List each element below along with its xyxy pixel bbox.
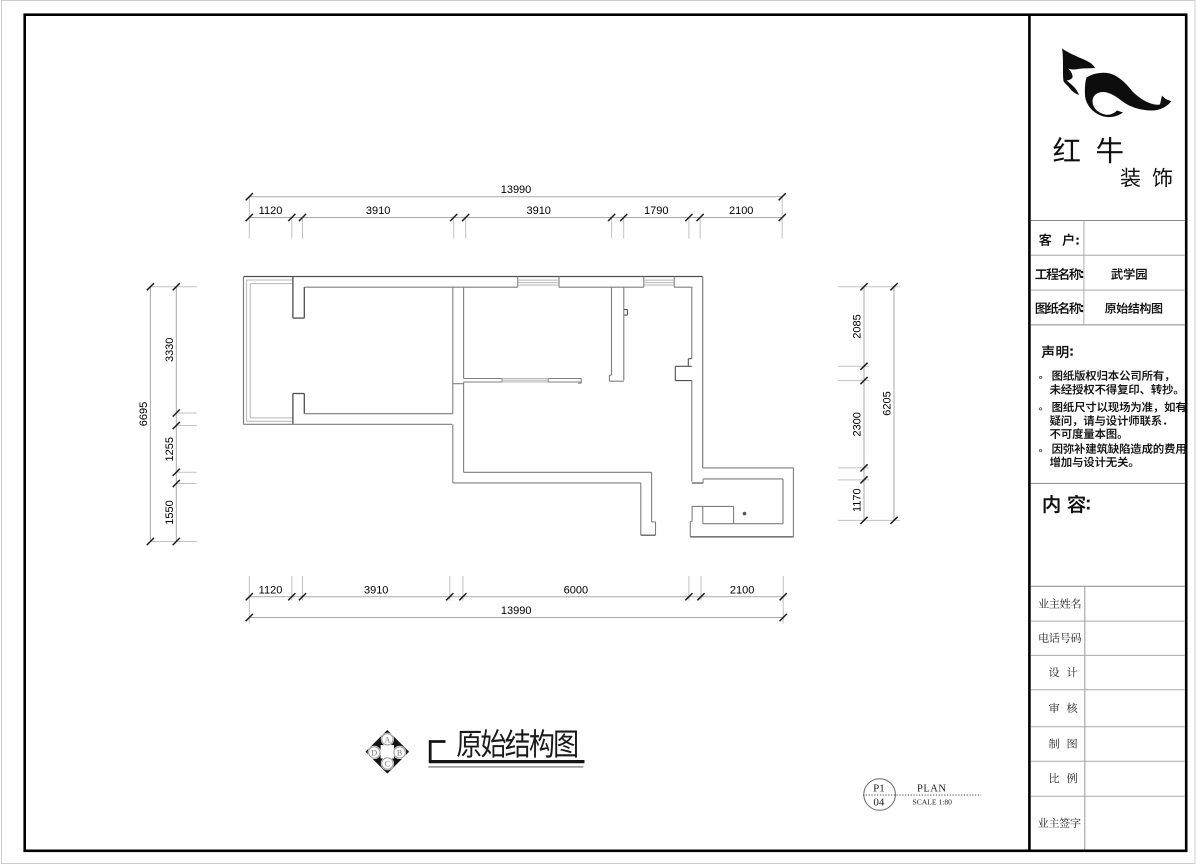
svg-text:6695: 6695 [138,402,150,426]
svg-text:2085: 2085 [852,314,864,338]
svg-text:B: B [397,749,402,758]
svg-text:3910: 3910 [366,205,390,217]
svg-text:PLAN: PLAN [917,784,946,795]
svg-text:2100: 2100 [730,584,754,596]
svg-text:6205: 6205 [882,391,894,415]
svg-text:1120: 1120 [259,584,283,596]
svg-text:3910: 3910 [526,205,550,217]
svg-text:2300: 2300 [852,412,864,436]
svg-text:1120: 1120 [259,205,283,217]
svg-text:SCALE 1:80: SCALE 1:80 [913,798,953,807]
svg-text:04: 04 [873,796,885,808]
svg-text:C: C [385,760,390,769]
svg-text:13990: 13990 [501,605,532,617]
svg-text:2100: 2100 [729,205,753,217]
svg-text:1255: 1255 [164,437,176,461]
svg-text:D: D [371,749,377,758]
svg-text:1170: 1170 [852,488,864,512]
svg-text:A: A [385,735,391,744]
svg-text:3910: 3910 [364,584,388,596]
svg-text:13990: 13990 [501,184,532,196]
svg-text:1550: 1550 [164,500,176,524]
svg-text:P1: P1 [873,782,885,794]
svg-text:6000: 6000 [564,584,588,596]
svg-text:3330: 3330 [164,338,176,362]
svg-text:1790: 1790 [644,205,668,217]
